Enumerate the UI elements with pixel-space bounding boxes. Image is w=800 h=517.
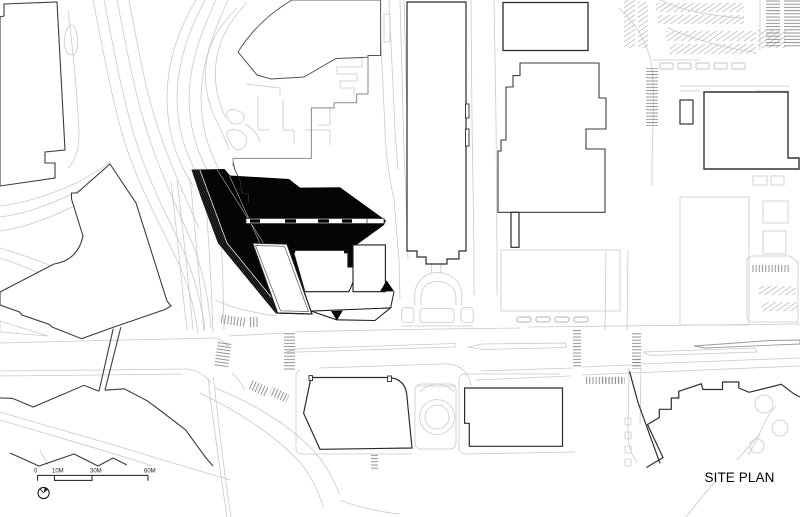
svg-text:SITE PLAN: SITE PLAN [705,470,775,485]
svg-text:10M: 10M [52,469,64,475]
svg-text:60M: 60M [144,469,156,475]
svg-text:30M: 30M [90,469,102,475]
